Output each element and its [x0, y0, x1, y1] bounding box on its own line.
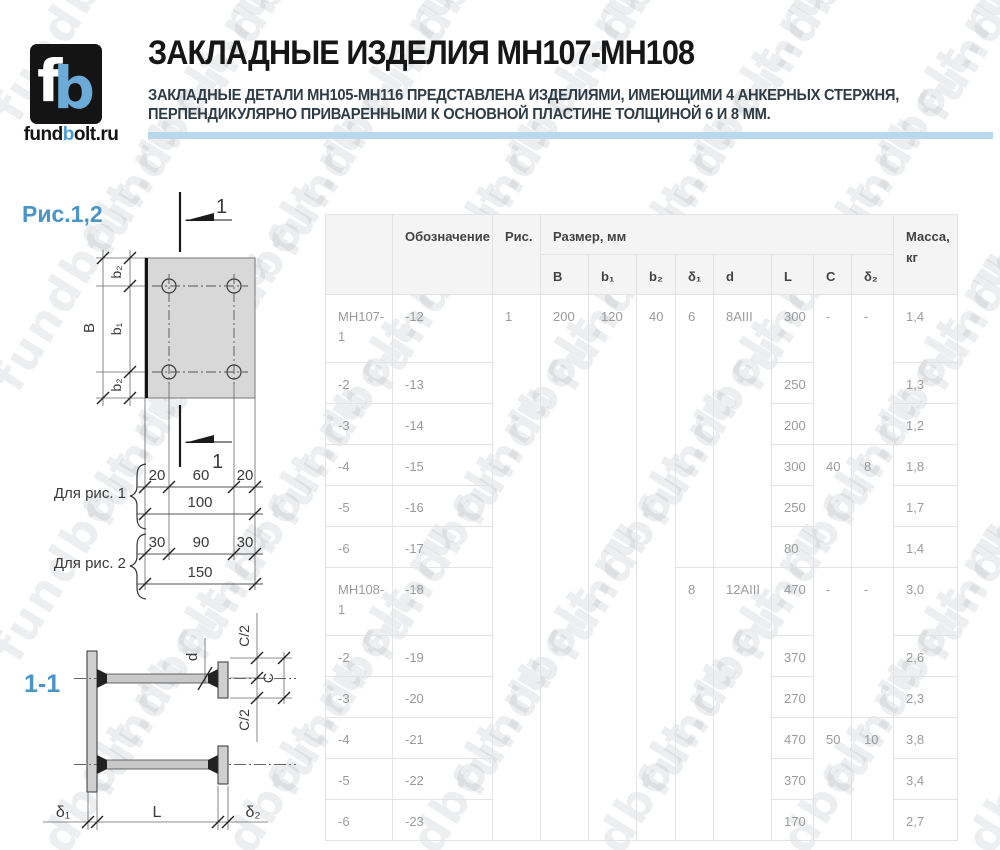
- brand-domain-part: b: [63, 124, 74, 145]
- col-header-delta2: δ₂: [852, 254, 894, 294]
- table-cell: 2,6: [894, 635, 958, 676]
- table-cell: -4: [326, 444, 393, 485]
- spec-table: Обозначение Рис. Размер, мм Масса, кг B …: [325, 214, 958, 841]
- figure-label: Рис.1,2: [22, 201, 103, 227]
- dim-label-c: C: [260, 673, 276, 683]
- table-cell: -: [852, 567, 894, 717]
- anchor-rod-bottom: [74, 746, 296, 784]
- table-cell: 300: [772, 294, 814, 362]
- fig1-total-dim: 100: [187, 494, 212, 511]
- table-cell: -3: [326, 676, 393, 717]
- section-marker-bottom: [180, 405, 232, 467]
- col-header-mass: Масса, кг: [894, 215, 958, 295]
- spec-table-body: МН107-1-1212001204068AIII300--1,4-2-1325…: [326, 294, 958, 840]
- table-cell: -: [814, 567, 852, 717]
- table-cell: 370: [772, 758, 814, 799]
- col-header-designation: Обозначение: [393, 215, 493, 295]
- page-content: f b fundbolt.ru ЗАКЛАДНЫЕ ИЗДЕЛИЯ МН107-…: [0, 0, 1000, 850]
- table-cell: 200: [541, 294, 589, 840]
- table-cell: 1,8: [894, 444, 958, 485]
- col-header-b2: b₂: [637, 254, 676, 294]
- technical-drawing: Рис.1,2 1: [0, 180, 325, 850]
- col-header-b1: b₁: [589, 254, 637, 294]
- table-cell: 2,7: [894, 799, 958, 840]
- table-cell: 1,7: [894, 485, 958, 526]
- table-cell: 6: [676, 294, 714, 567]
- accent-rule: [148, 132, 993, 139]
- brand-domain: fundbolt.ru: [16, 124, 126, 146]
- table-cell: 3,8: [894, 717, 958, 758]
- table-cell: -16: [393, 485, 493, 526]
- table-cell: -12: [393, 294, 493, 362]
- table-cell: 300: [772, 444, 814, 485]
- table-cell: 3,4: [894, 758, 958, 799]
- section-label: 1-1: [24, 670, 60, 698]
- table-cell: 80: [772, 526, 814, 567]
- section-mark-number: 1: [212, 451, 223, 473]
- dim-label-b2: b₂: [108, 378, 124, 391]
- dim-label-delta1: δ₁: [56, 804, 70, 821]
- table-cell: 8AIII: [714, 294, 772, 567]
- table-cell: -18: [393, 567, 493, 635]
- table-cell: -4: [326, 717, 393, 758]
- table-cell: 1,4: [894, 526, 958, 567]
- table-cell: МН107-1: [326, 294, 393, 362]
- table-cell: 1: [493, 294, 541, 840]
- col-header-B: B: [541, 254, 589, 294]
- table-cell: 1,4: [894, 294, 958, 362]
- fig2-segment-dim: 90: [193, 534, 210, 551]
- fig1-segment-dim: 60: [193, 467, 210, 484]
- dim-label-c-half: C/2: [236, 709, 252, 731]
- table-cell: -19: [393, 635, 493, 676]
- catalog-page: fundbolt.rufundbolt.rufundbolt.rufundbol…: [0, 0, 1000, 850]
- fig2-total-dim: 150: [187, 564, 212, 581]
- table-cell: 1,2: [894, 403, 958, 444]
- table-cell: -23: [393, 799, 493, 840]
- table-cell: -20: [393, 676, 493, 717]
- table-cell: 10: [852, 717, 894, 840]
- page-subtitle: ЗАКЛАДНЫЕ ДЕТАЛИ МН105-МН116 ПРЕДСТАВЛЕН…: [148, 86, 899, 124]
- table-cell: 170: [772, 799, 814, 840]
- table-cell: -17: [393, 526, 493, 567]
- table-cell: 40: [814, 444, 852, 567]
- dim-label-b2: b₂: [108, 265, 124, 278]
- col-header-name: [326, 215, 393, 295]
- col-header-C: C: [814, 254, 852, 294]
- fig2-brace: [130, 534, 146, 599]
- fig2-dims-label: Для рис. 2: [54, 555, 126, 572]
- col-header-d: d: [714, 254, 772, 294]
- table-cell: -2: [326, 362, 393, 403]
- brand-logo-icon: f b: [30, 44, 102, 124]
- brand-domain-part: fund: [24, 124, 63, 145]
- table-cell: 8: [852, 444, 894, 567]
- table-cell: -2: [326, 635, 393, 676]
- table-cell: 12AIII: [714, 567, 772, 840]
- table-cell: -5: [326, 758, 393, 799]
- fig1-brace: [130, 464, 146, 529]
- logo-letter-b: b: [53, 54, 95, 122]
- table-cell: -: [852, 294, 894, 444]
- table-cell: 470: [772, 567, 814, 635]
- col-header-fig: Рис.: [493, 215, 541, 295]
- table-cell: -21: [393, 717, 493, 758]
- subtitle-line: ЗАКЛАДНЫЕ ДЕТАЛИ МН105-МН116 ПРЕДСТАВЛЕН…: [148, 86, 899, 105]
- subtitle-line: ПЕРПЕНДИКУЛЯРНО ПРИВАРЕННЫМИ К ОСНОВНОЙ …: [148, 105, 899, 124]
- table-cell: -6: [326, 526, 393, 567]
- table-cell: МН108-1: [326, 567, 393, 635]
- table-cell: 3,0: [894, 567, 958, 635]
- brand-domain-part: olt.ru: [74, 124, 119, 145]
- dim-label-d: d: [184, 653, 201, 661]
- dim-label-L: L: [153, 804, 162, 821]
- col-header-size-group: Размер, мм: [541, 215, 894, 255]
- table-cell: -: [814, 294, 852, 444]
- table-cell: -15: [393, 444, 493, 485]
- table-cell: -5: [326, 485, 393, 526]
- page-title: ЗАКЛАДНЫЕ ИЗДЕЛИЯ МН107-МН108: [148, 34, 694, 73]
- table-cell: 250: [772, 485, 814, 526]
- table-cell: -3: [326, 403, 393, 444]
- table-cell: 370: [772, 635, 814, 676]
- table-cell: 8: [676, 567, 714, 840]
- fig1-dims-label: Для рис. 1: [54, 485, 126, 502]
- dim-label-b1: b₁: [108, 322, 124, 335]
- table-cell: 1,3: [894, 362, 958, 403]
- table-row: МН107-1-1212001204068AIII300--1,4: [326, 294, 958, 362]
- table-cell: 200: [772, 403, 814, 444]
- base-plate-section: [87, 651, 97, 792]
- dim-label-delta2: δ₂: [245, 804, 260, 821]
- table-cell: 250: [772, 362, 814, 403]
- table-cell: 40: [637, 294, 676, 840]
- table-cell: 270: [772, 676, 814, 717]
- table-cell: 2,3: [894, 676, 958, 717]
- table-cell: 470: [772, 717, 814, 758]
- section-mark-number: 1: [216, 196, 227, 218]
- col-header-delta1: δ₁: [676, 254, 714, 294]
- table-cell: -6: [326, 799, 393, 840]
- table-cell: 120: [589, 294, 637, 840]
- table-cell: -13: [393, 362, 493, 403]
- table-cell: 50: [814, 717, 852, 840]
- dim-label-c-half: C/2: [236, 625, 252, 647]
- col-header-L: L: [772, 254, 814, 294]
- table-cell: -14: [393, 403, 493, 444]
- dim-label-B: B: [81, 323, 98, 333]
- table-cell: -22: [393, 758, 493, 799]
